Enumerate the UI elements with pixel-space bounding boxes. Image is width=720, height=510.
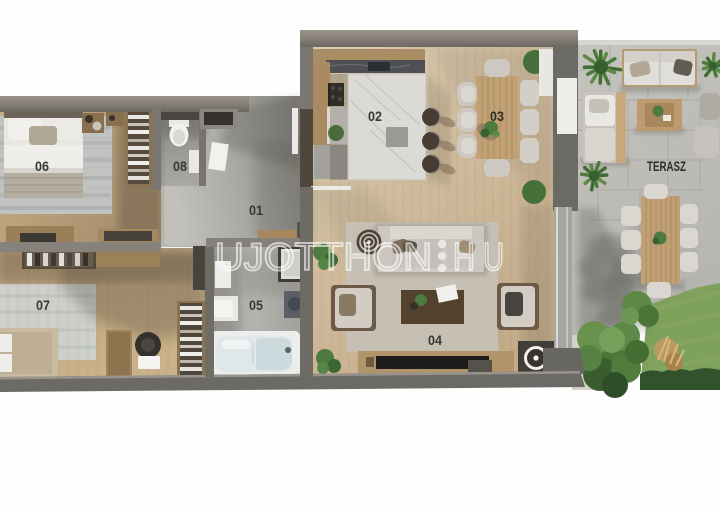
svg-text:03: 03: [490, 108, 504, 124]
svg-text:U: U: [483, 236, 504, 279]
svg-text:06: 06: [35, 158, 49, 174]
svg-text:UJOTTHON: UJOTTHON: [215, 236, 432, 279]
svg-text:H: H: [453, 236, 475, 279]
svg-text:05: 05: [249, 297, 263, 313]
svg-text:01: 01: [249, 202, 263, 218]
svg-text:04: 04: [428, 332, 442, 348]
svg-text:TERASZ: TERASZ: [647, 158, 686, 174]
svg-text:07: 07: [36, 297, 50, 313]
svg-text:02: 02: [368, 108, 382, 124]
svg-text:08: 08: [173, 158, 187, 174]
